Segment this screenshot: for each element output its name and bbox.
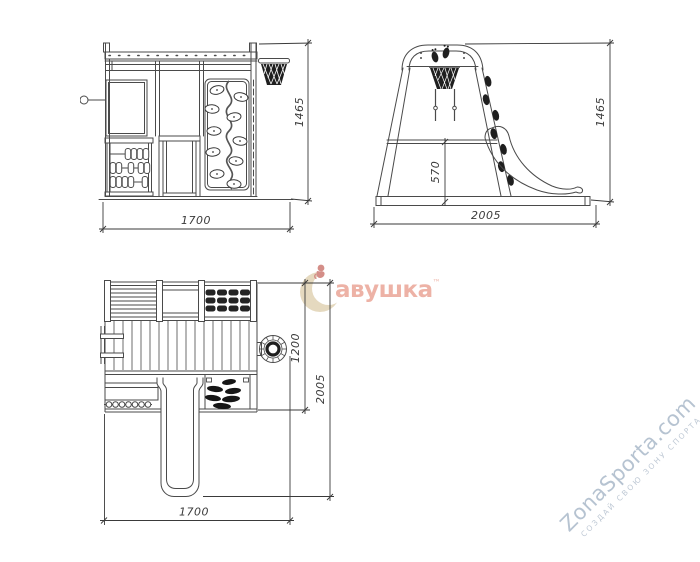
top-plan-view: 1200 2005 1700 xyxy=(80,258,342,554)
plan-rail-slats xyxy=(111,289,198,313)
side-slide xyxy=(485,126,583,194)
footprint-icons xyxy=(430,45,450,63)
front-basketball-hoop xyxy=(259,59,290,86)
climbing-rope xyxy=(226,81,232,189)
front-side-panel xyxy=(80,80,147,136)
plan-side-ladder xyxy=(101,326,124,364)
side-elevation-view: 570 2005 1465 xyxy=(370,20,625,250)
site-watermark-slogan: СОЗДАЙ СВОЮ ЗОНУ СПОРТА xyxy=(550,386,700,562)
side-arch-details xyxy=(420,45,465,63)
brand-watermark-text: авушка xyxy=(335,277,433,303)
plan-climbing-grid xyxy=(206,290,251,312)
dimension-plan-depth: 2005 xyxy=(314,374,327,404)
front-abacus xyxy=(105,138,153,196)
trademark-symbol: ™ xyxy=(433,278,441,287)
side-hanging-ropes xyxy=(434,89,457,121)
front-elevation-view: 1465 1700 xyxy=(80,20,330,250)
plan-deck-planks xyxy=(114,321,249,370)
plan-climbing-holds xyxy=(205,378,242,409)
basketball-rim xyxy=(259,59,290,64)
dimension-plan-width: 1700 xyxy=(179,506,209,519)
steering-wheel-knob xyxy=(80,96,88,104)
site-watermark-zonasporta: ZonaSporta.com СОЗДАЙ СВОЮ ЗОНУ СПОРТА xyxy=(532,367,700,562)
plan-holds-zone xyxy=(205,375,250,410)
side-basketball-net xyxy=(429,67,460,89)
dimension-plan-ring-offset: 1200 xyxy=(289,333,302,363)
front-slide-bay xyxy=(159,136,200,196)
dimension-side-width: 2005 xyxy=(471,209,501,222)
dimension-side-height: 1465 xyxy=(594,97,607,127)
bolt-dots xyxy=(420,52,465,59)
dimension-front-width: 1700 xyxy=(181,214,211,227)
dimension-side-platform-height: 570 xyxy=(429,161,442,184)
basketball-net xyxy=(261,64,287,85)
blueprint-canvas: авушка ™ ZonaSporta.com СОЗДАЙ СВОЮ ЗОНУ… xyxy=(0,0,700,562)
plan-basketball-ring xyxy=(257,336,287,363)
front-climbing-wall xyxy=(205,79,249,190)
dimension-front-height: 1465 xyxy=(293,97,306,127)
ring-rim xyxy=(267,343,279,355)
side-frame xyxy=(376,45,590,206)
plan-slide xyxy=(157,378,203,497)
site-watermark-title: ZonaSporta.com xyxy=(532,367,700,559)
plan-abacus xyxy=(104,383,158,407)
